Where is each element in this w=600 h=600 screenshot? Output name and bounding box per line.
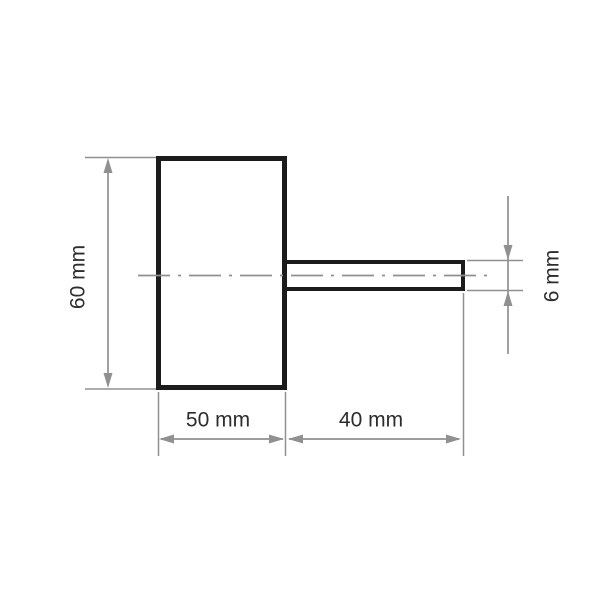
- arrowhead-down-icon: [504, 245, 513, 260]
- arrowhead-up-icon: [104, 158, 113, 173]
- arrowhead-down-icon: [104, 373, 113, 388]
- dimension-overall-height: 60 mm: [67, 158, 113, 388]
- extension-lines: [85, 158, 523, 457]
- dimension-shank-length: 40 mm: [288, 409, 461, 444]
- arrowhead-up-icon: [504, 291, 513, 306]
- arrowhead-left-icon: [159, 435, 174, 444]
- body-width-label: 50 mm: [186, 409, 250, 432]
- technical-drawing-canvas: 60 mm 6 mm 50 mm 40 mm: [0, 0, 600, 600]
- shank-length-label: 40 mm: [339, 409, 403, 432]
- dimension-drawing: 60 mm 6 mm 50 mm 40 mm: [0, 0, 600, 600]
- arrowhead-right-icon: [269, 435, 284, 444]
- arrowhead-left-icon: [288, 435, 303, 444]
- arrowhead-right-icon: [446, 435, 461, 444]
- wheel-body-outline: [159, 159, 285, 388]
- height-dimension-label: 60 mm: [67, 245, 90, 309]
- dimension-shank-diameter: 6 mm: [504, 196, 564, 354]
- dimension-body-width: 50 mm: [159, 409, 284, 444]
- shank-diameter-label: 6 mm: [541, 250, 564, 303]
